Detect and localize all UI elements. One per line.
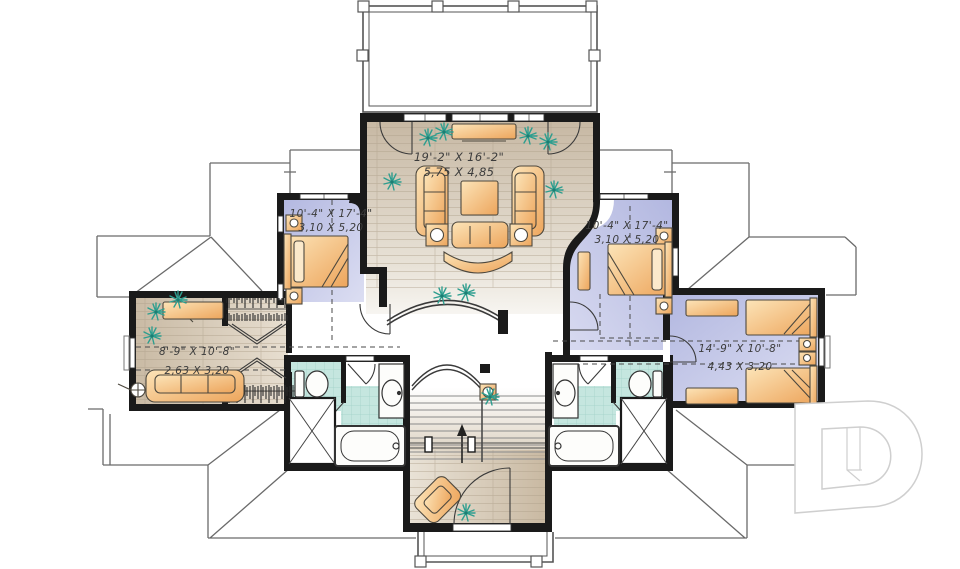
toilet-left xyxy=(295,371,328,397)
dresser-lower-left xyxy=(163,302,223,322)
bedroom-lower-left-metric: 2,63 X 3,20 xyxy=(164,365,229,377)
room-floors xyxy=(134,118,820,528)
lower-deck xyxy=(415,532,553,567)
bathtub-right xyxy=(549,426,619,466)
bedroom-left-imperial: 10'-4" X 17'-4" xyxy=(290,208,373,220)
family-room-metric: 5,75 X 4,85 xyxy=(424,165,495,179)
bedroom-left-metric: 3,10 X 5,20 xyxy=(298,222,363,234)
bedroom-lower-left-imperial: 8'-9" X 10'-8" xyxy=(159,346,235,358)
bedroom-lower-right-metric: 4,43 X 3,20 xyxy=(707,361,772,373)
family-room-imperial: 19'-2" X 16'-2" xyxy=(414,150,504,164)
sink-left xyxy=(379,364,404,418)
twin-bed-top xyxy=(746,298,817,337)
bedroom-lower-right-imperial: 14'-9" X 10'-8" xyxy=(699,343,782,355)
upper-deck xyxy=(357,1,600,112)
sink-right xyxy=(553,364,578,418)
toilet-right xyxy=(629,371,662,397)
coffee-table xyxy=(461,181,498,215)
bedroom-right-imperial: 10'-4" X 17'-4" xyxy=(586,220,669,232)
family-room-floor xyxy=(366,118,596,314)
loveseat xyxy=(452,222,508,248)
second-floor-plan: 19'-2" X 16'-2" 5,75 X 4,85 10'-4" X 17'… xyxy=(0,0,960,569)
tv-console xyxy=(452,124,516,141)
drummond-d-logo xyxy=(795,401,922,513)
bathtub-left xyxy=(335,426,405,466)
floor-plan-page: 19'-2" X 16'-2" 5,75 X 4,85 10'-4" X 17'… xyxy=(0,0,960,569)
bedroom-right-metric: 3,10 X 5,20 xyxy=(594,234,659,246)
nightstands-between-beds xyxy=(799,338,816,365)
